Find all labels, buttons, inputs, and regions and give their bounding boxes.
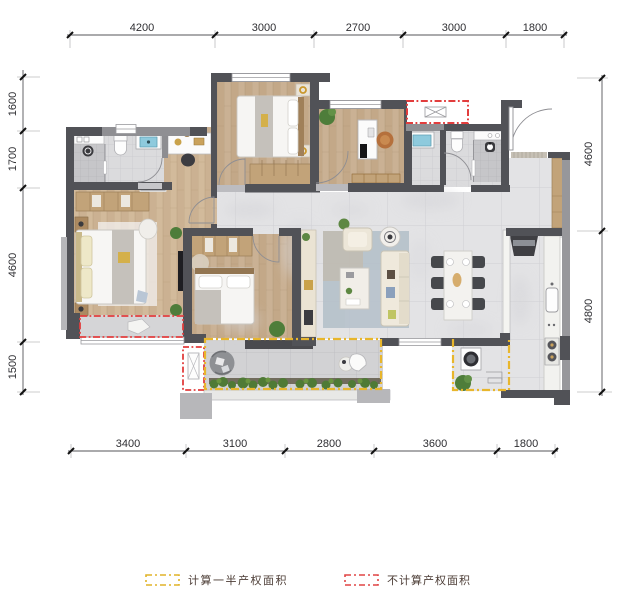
svg-text:4600: 4600 [7,253,19,277]
svg-text:4800: 4800 [583,299,595,323]
svg-text:3400: 3400 [116,438,140,450]
svg-text:3100: 3100 [223,438,247,450]
svg-text:1700: 1700 [7,147,19,171]
svg-text:3000: 3000 [252,22,276,34]
svg-text:1800: 1800 [514,438,538,450]
svg-text:1600: 1600 [7,92,19,116]
svg-text:4600: 4600 [583,142,595,166]
svg-text:1800: 1800 [523,22,547,34]
svg-text:不计算产权面积: 不计算产权面积 [387,573,471,587]
svg-text:2700: 2700 [346,22,370,34]
svg-text:1500: 1500 [7,355,19,379]
svg-text:3000: 3000 [442,22,466,34]
svg-text:3600: 3600 [423,438,447,450]
svg-text:计算一半产权面积: 计算一半产权面积 [188,573,288,587]
svg-text:4200: 4200 [130,22,154,34]
svg-text:2800: 2800 [317,438,341,450]
